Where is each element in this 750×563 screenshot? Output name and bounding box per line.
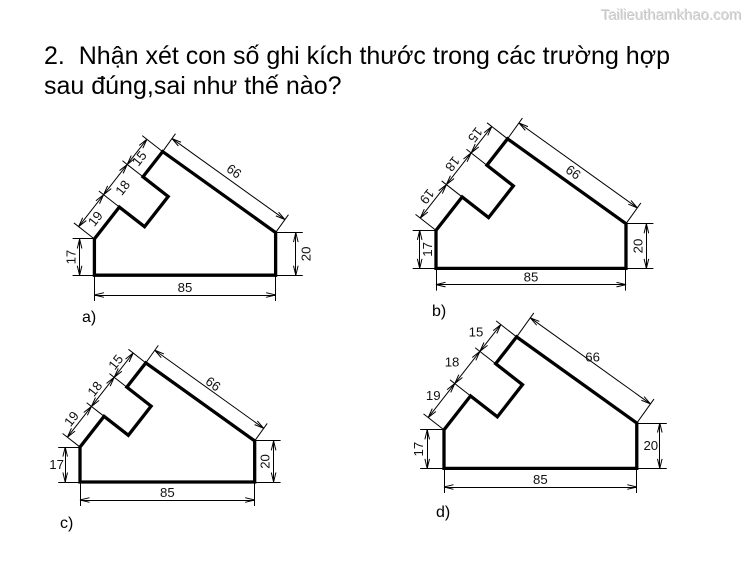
- svg-text:20: 20: [299, 247, 314, 262]
- svg-text:17: 17: [420, 242, 435, 257]
- svg-text:18: 18: [84, 378, 105, 399]
- svg-text:20: 20: [643, 438, 658, 453]
- svg-text:85: 85: [160, 485, 175, 500]
- svg-text:19: 19: [426, 388, 441, 403]
- svg-text:19: 19: [417, 186, 438, 207]
- svg-text:15: 15: [465, 124, 486, 145]
- svg-text:17: 17: [49, 457, 64, 472]
- svg-text:66: 66: [585, 349, 600, 364]
- svg-text:20: 20: [630, 239, 645, 254]
- svg-text:15: 15: [469, 324, 484, 339]
- svg-text:85: 85: [524, 270, 539, 285]
- svg-text:66: 66: [203, 374, 224, 395]
- svg-text:19: 19: [61, 408, 82, 429]
- svg-text:20: 20: [258, 454, 273, 469]
- svg-text:18: 18: [442, 154, 463, 175]
- svg-text:17: 17: [63, 250, 78, 265]
- svg-text:85: 85: [178, 280, 193, 295]
- svg-text:15: 15: [129, 148, 150, 169]
- svg-text:85: 85: [533, 472, 548, 487]
- svg-text:66: 66: [224, 161, 245, 182]
- svg-text:15: 15: [105, 352, 126, 373]
- svg-text:18: 18: [445, 354, 460, 369]
- svg-text:17: 17: [411, 442, 426, 457]
